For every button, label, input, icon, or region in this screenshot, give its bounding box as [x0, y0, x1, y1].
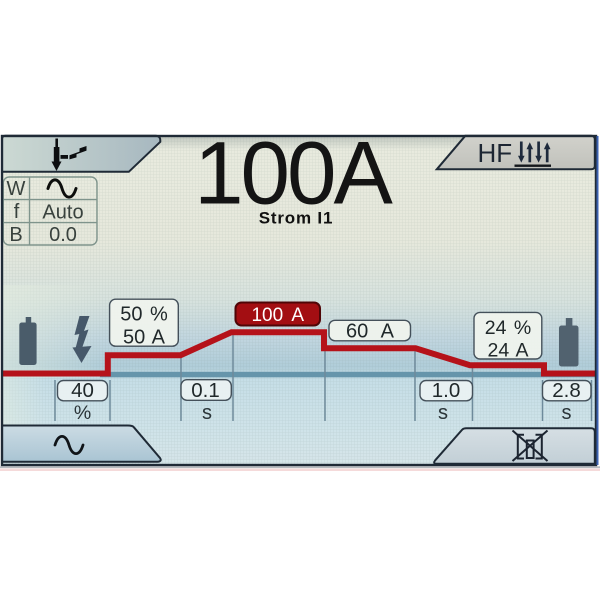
- svg-text:100A: 100A: [194, 123, 393, 223]
- svg-text:24 A: 24 A: [487, 340, 528, 362]
- svg-text:50 %: 50 %: [120, 304, 168, 326]
- svg-text:0.1: 0.1: [191, 379, 220, 402]
- svg-text:B: B: [9, 224, 22, 246]
- svg-text:40: 40: [71, 379, 94, 402]
- svg-text:HF: HF: [478, 138, 513, 168]
- svg-text:f: f: [14, 201, 20, 223]
- svg-text:50 A: 50 A: [123, 327, 166, 349]
- svg-text:0.0: 0.0: [49, 224, 77, 246]
- svg-text:s: s: [438, 402, 448, 424]
- svg-text:Auto: Auto: [42, 202, 83, 224]
- svg-text:60 A: 60 A: [346, 321, 395, 343]
- svg-text:24 %: 24 %: [485, 317, 531, 339]
- svg-text:W: W: [7, 178, 26, 200]
- svg-text:1.0: 1.0: [432, 379, 461, 402]
- svg-text:100 A: 100 A: [251, 305, 304, 326]
- svg-text:2.8: 2.8: [552, 379, 581, 402]
- svg-text:s: s: [562, 402, 572, 424]
- svg-text:Strom I1: Strom I1: [259, 209, 333, 228]
- svg-text:%: %: [74, 402, 91, 424]
- svg-text:s: s: [202, 402, 212, 424]
